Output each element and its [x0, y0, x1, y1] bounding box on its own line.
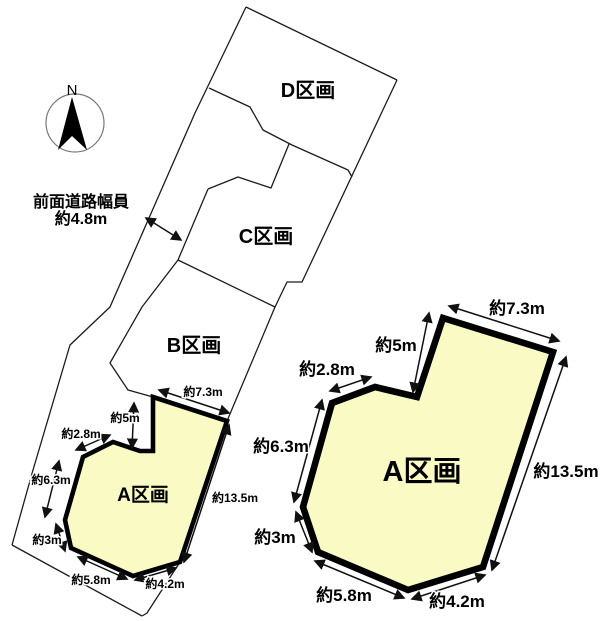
dim-label-6-3-large: 約6.3m	[253, 436, 309, 456]
dim-label-5-8-small: 約5.8m	[71, 572, 110, 587]
dim-label-3-small: 約3m	[32, 532, 61, 547]
parcel-d-label: D区画	[281, 80, 335, 102]
dim-label-7-3-small: 約7.3m	[183, 384, 222, 399]
road-width-arrow	[146, 218, 181, 240]
parcel-a-large-label: A区画	[383, 456, 462, 488]
north-arrow-icon	[58, 97, 87, 150]
dim-label-5-8-large: 約5.8m	[316, 585, 372, 605]
north-label: N	[67, 82, 78, 99]
plot-map: N 前面道路幅員 約4.8m D区画 C区画 B区画 A区画 A区画 約7.3m…	[0, 0, 607, 621]
dim-label-4-2-large: 約4.2m	[429, 591, 485, 611]
boundary-d-top	[246, 7, 397, 80]
parcel-a-small-label: A区画	[117, 485, 169, 506]
boundary-c-b	[178, 260, 275, 307]
dim-label-13-5-small: 約13.5m	[212, 490, 258, 505]
dim-arrow-6-3-small	[45, 461, 59, 517]
parcel-a-large-shape	[303, 318, 553, 590]
road-width-label-line1: 前面道路幅員	[33, 192, 129, 211]
parcel-b-label: B区画	[167, 335, 221, 357]
boundary-road-east	[110, 189, 208, 397]
diagram-canvas: N 前面道路幅員 約4.8m D区画 C区画 B区画 A区画 A区画 約7.3m…	[0, 0, 607, 621]
dim-label-2-8-large: 約2.8m	[299, 359, 355, 379]
dim-label-2-8-small: 約2.8m	[61, 426, 100, 441]
dim-label-7-3-large: 約7.3m	[489, 298, 545, 318]
boundary-c-west-zigzag	[208, 144, 289, 189]
parcel-c-label: C区画	[239, 226, 293, 248]
dim-label-4-2-small: 約4.2m	[145, 576, 184, 591]
dim-label-13-5-large: 約13.5m	[533, 461, 598, 481]
dim-label-5-small: 約5m	[110, 410, 139, 425]
dim-label-3-large: 約3m	[254, 527, 296, 547]
dim-label-5-large: 約5m	[375, 335, 417, 355]
dim-label-6-3-small: 約6.3m	[31, 472, 70, 487]
road-width-label-line2: 約4.8m	[55, 209, 107, 228]
dim-arrow-5-small	[132, 403, 134, 448]
